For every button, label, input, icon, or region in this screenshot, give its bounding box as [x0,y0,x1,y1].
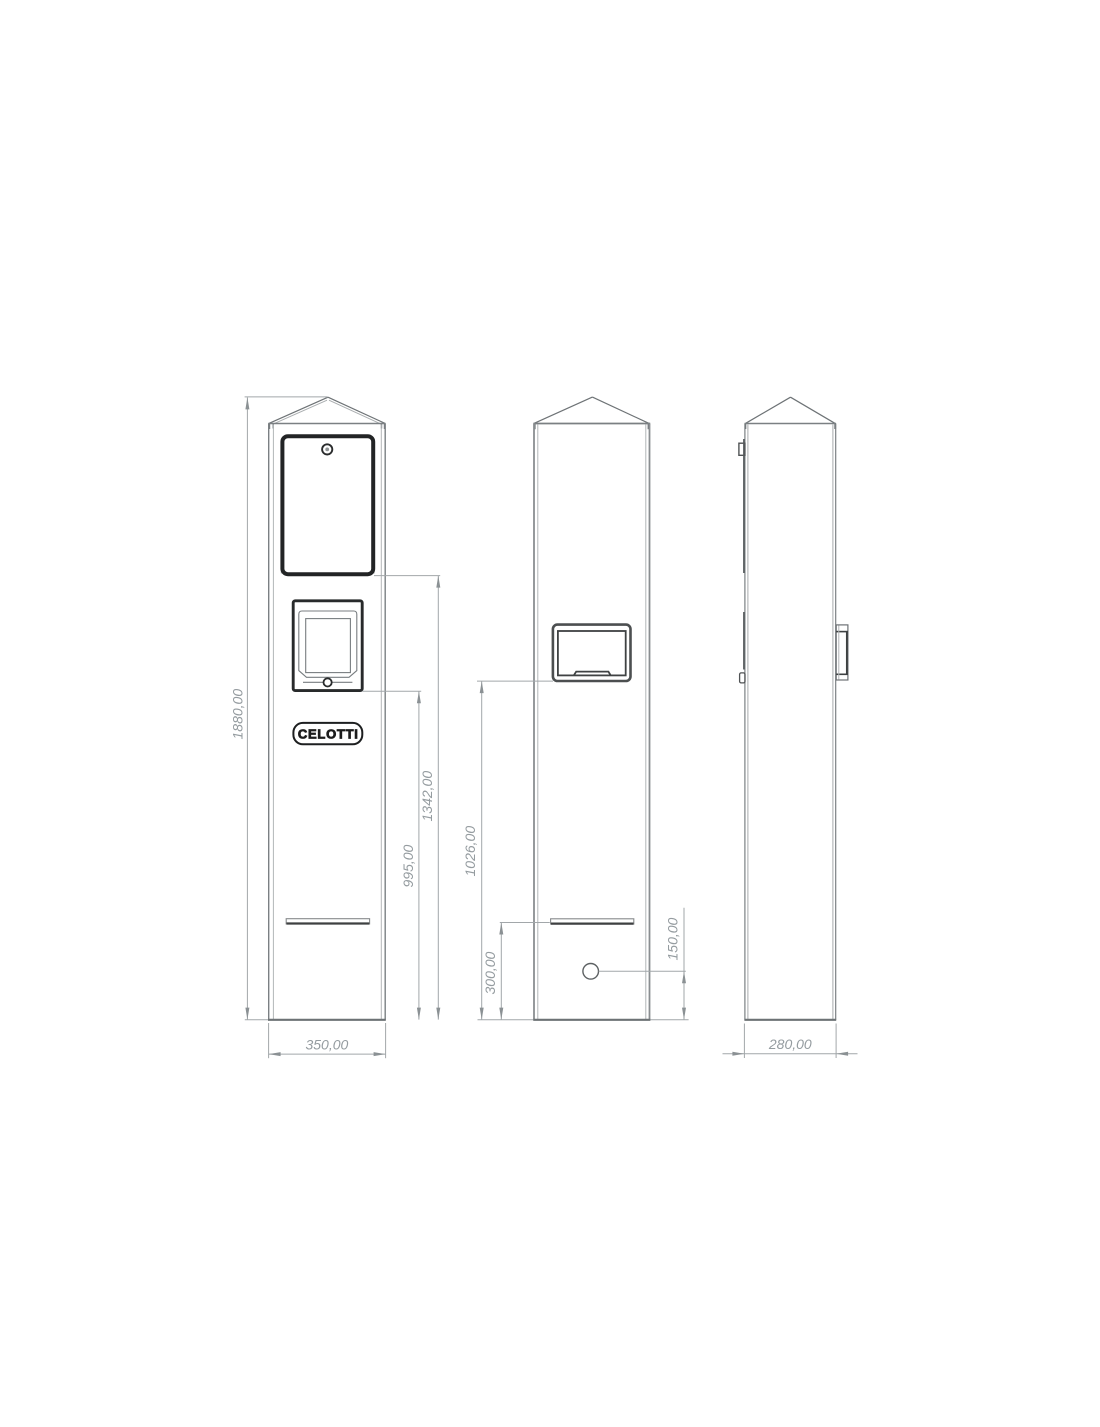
svg-text:300,00: 300,00 [482,951,498,994]
svg-text:1880,00: 1880,00 [230,689,246,740]
svg-text:350,00: 350,00 [305,1037,348,1053]
svg-text:CELOTTI: CELOTTI [298,727,358,742]
svg-text:995,00: 995,00 [400,844,416,887]
svg-text:1026,00: 1026,00 [462,826,478,877]
svg-text:150,00: 150,00 [665,917,681,960]
svg-text:280,00: 280,00 [768,1036,812,1052]
svg-text:1342,00: 1342,00 [419,771,435,822]
